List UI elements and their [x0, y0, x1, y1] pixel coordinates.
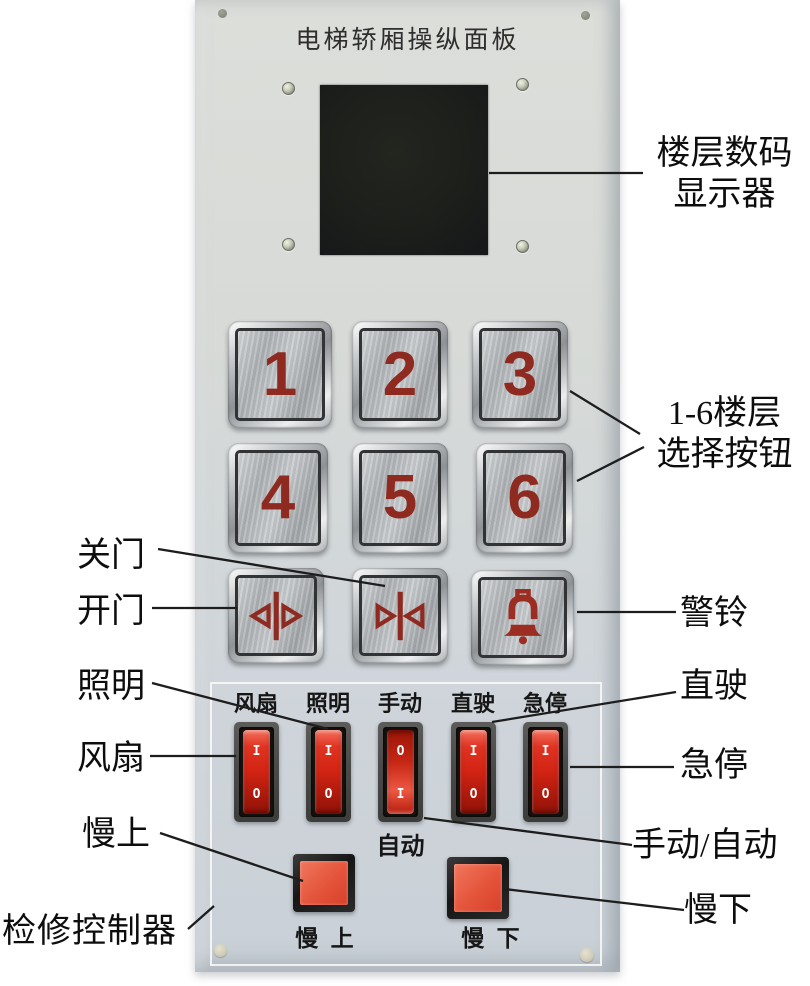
mount-hole	[214, 944, 227, 957]
floor-button-6[interactable]: 6	[476, 443, 573, 553]
floor-button-3[interactable]: 3	[472, 321, 568, 428]
annotation-slow-up: 慢上	[58, 814, 150, 855]
manual-auto-switch[interactable]: OI	[378, 722, 423, 822]
annotation-open-door: 开门	[55, 591, 145, 632]
auto-label: 自动	[368, 826, 433, 861]
light-switch[interactable]: IO	[306, 722, 351, 822]
annotation-lighting: 照明	[55, 666, 145, 707]
door-close-button[interactable]	[352, 568, 448, 663]
annotation-bell: 警铃	[680, 593, 780, 634]
switch-label-light: 照明	[293, 686, 363, 718]
plug-hole	[581, 11, 590, 20]
plug-hole	[218, 9, 227, 18]
switch-label-estop: 急停	[510, 686, 580, 718]
slow-down-print-label: 慢 下	[448, 919, 536, 953]
fan-switch[interactable]: IO	[234, 722, 279, 822]
annotated-elevator-panel-figure: 电梯轿厢操纵面板 1 2 3 4 5 6	[0, 0, 810, 986]
floor-number-display	[320, 85, 488, 255]
annotation-slow-down: 慢下	[684, 890, 784, 931]
panel-title: 电梯轿厢操纵面板	[195, 20, 620, 56]
switch-label-direct: 直驶	[438, 686, 508, 718]
screw	[516, 78, 529, 91]
switch-label-manual: 手动	[365, 686, 435, 718]
screw	[516, 240, 529, 253]
annotation-close-door: 关门	[55, 535, 145, 576]
door-close-arrows-icon	[370, 589, 430, 643]
switch-label-fan: 风扇	[221, 686, 291, 718]
annotation-fan: 风扇	[55, 738, 145, 779]
emergency-stop-switch[interactable]: IO	[523, 722, 568, 822]
floor-button-5[interactable]: 5	[352, 443, 448, 553]
door-open-button[interactable]	[228, 568, 324, 663]
direct-drive-switch[interactable]: IO	[451, 722, 496, 822]
slow-up-button[interactable]	[293, 854, 355, 912]
annotation-emergency-stop: 急停	[680, 745, 780, 786]
annotation-floor-buttons: 1-6楼层 选择按钮	[637, 393, 810, 475]
slow-down-button[interactable]	[447, 857, 509, 919]
alarm-bell-button[interactable]	[471, 570, 574, 665]
door-open-arrows-icon	[246, 589, 306, 643]
annotation-display: 楼层数码 显示器	[637, 133, 810, 215]
screw	[282, 82, 295, 95]
mount-hole	[580, 948, 594, 962]
alarm-bell-icon	[495, 589, 551, 647]
annotation-inspection-controller: 检修控制器	[2, 911, 197, 952]
floor-button-2[interactable]: 2	[352, 321, 448, 428]
slow-up-print-label: 慢 上	[282, 919, 370, 953]
screw	[282, 238, 295, 251]
annotation-direct-drive: 直驶	[680, 666, 780, 707]
floor-button-4[interactable]: 4	[228, 443, 328, 553]
floor-button-1[interactable]: 1	[228, 321, 332, 428]
annotation-manual-auto: 手动/自动	[632, 825, 810, 866]
